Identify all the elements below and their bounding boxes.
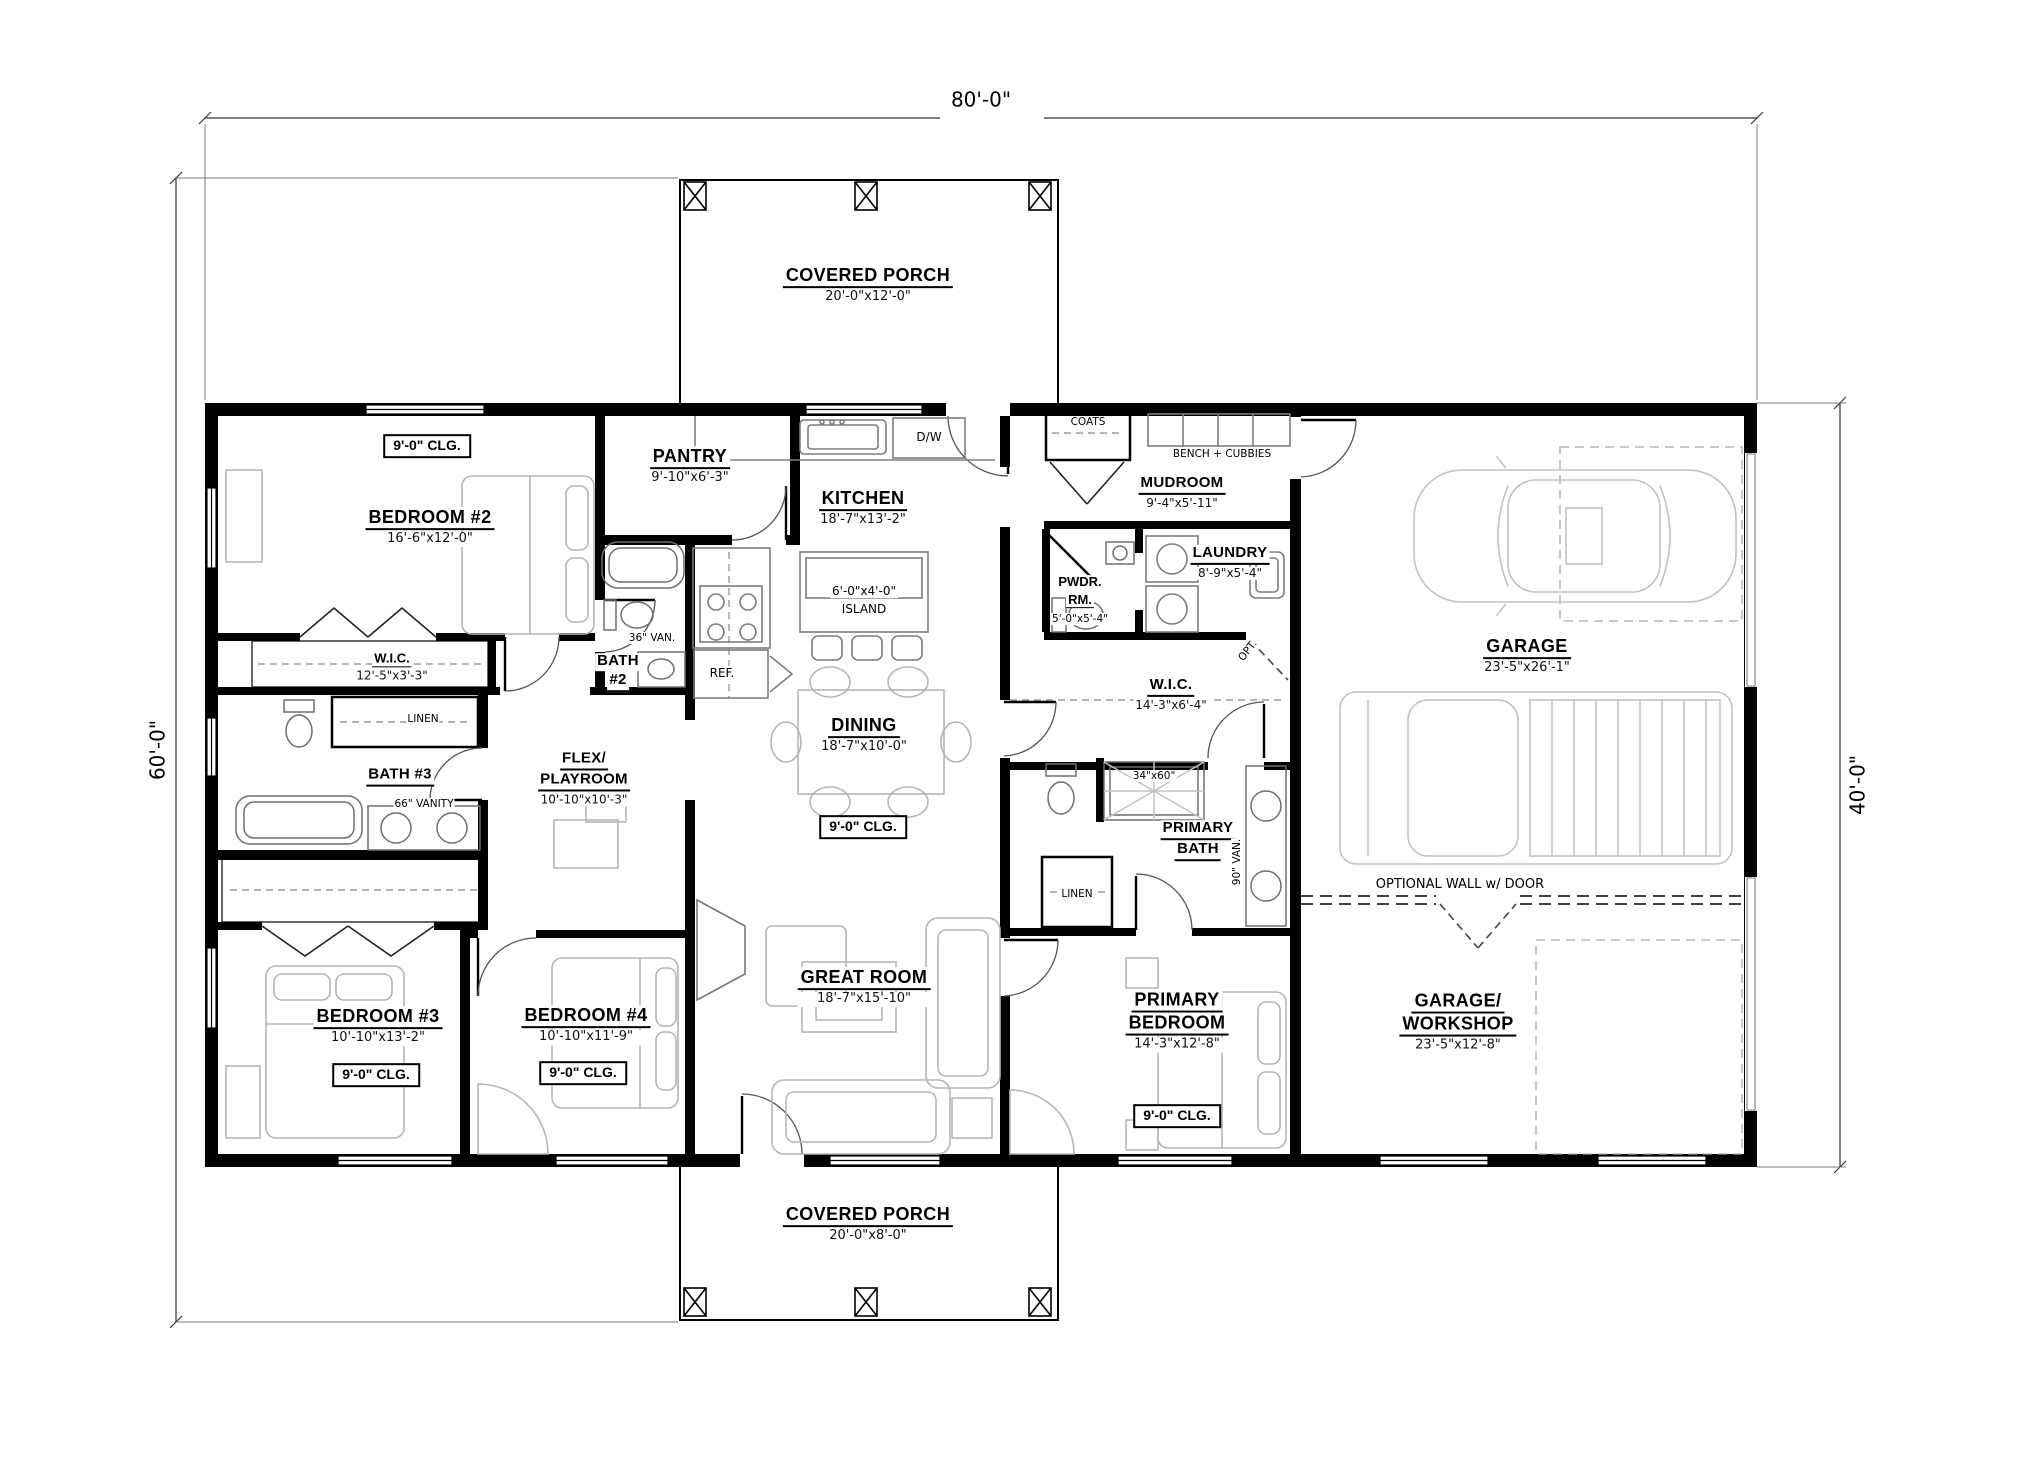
chair-primary bbox=[1010, 1090, 1074, 1154]
porch-top-size: 20'-0"x12'-0" bbox=[783, 290, 953, 305]
primary-bedroom-name-line2: BEDROOM bbox=[1126, 1013, 1229, 1036]
primary-bedroom-size: 14'-3"x12'-8" bbox=[1126, 1038, 1229, 1053]
kitchen-label: KITCHEN 18'-7"x13'-2" bbox=[818, 488, 908, 528]
bedroom3-label: BEDROOM #3 10'-10"x13'-2" bbox=[313, 1006, 442, 1046]
ceiling-badge-bedroom4: 9'-0" CLG. bbox=[539, 1061, 627, 1085]
pantry-label: PANTRY 9'-10"x6'-3" bbox=[649, 446, 731, 486]
dim-height-left-label: 60'-0" bbox=[146, 712, 170, 788]
mudroom-label: MUDROOM 9'-4"x5'-11" bbox=[1139, 474, 1226, 510]
dim-height-right-label: 40'-0" bbox=[1846, 747, 1870, 823]
garage-label: GARAGE 23'-5"x26'-1" bbox=[1482, 636, 1572, 676]
wic-bedroom2-size: 12'-5"x3'-3" bbox=[354, 669, 430, 682]
porch-post bbox=[684, 1288, 706, 1316]
wic-primary-size: 14'-3"x6'-4" bbox=[1133, 699, 1209, 712]
dresser-bedroom2 bbox=[226, 470, 262, 562]
great-room-size: 18'-7"x15'-10" bbox=[798, 992, 931, 1007]
mudroom-size: 9'-4"x5'-11" bbox=[1139, 497, 1226, 510]
great-room-name: GREAT ROOM bbox=[798, 967, 931, 990]
porch-top-name: COVERED PORCH bbox=[783, 265, 953, 288]
island-label: 6'-0"x4'-0" ISLAND bbox=[830, 582, 898, 618]
primary-bath-name-line1: PRIMARY bbox=[1161, 820, 1236, 840]
bath2-label: BATH #2 bbox=[595, 652, 641, 692]
flex-label: FLEX/ PLAYROOM 10'-10"x10'-3" bbox=[538, 749, 630, 806]
vanity66-label: 66" VANITY bbox=[393, 798, 454, 810]
vanity90-label: 90" VAN. bbox=[1231, 838, 1243, 886]
porch-post bbox=[1029, 182, 1051, 210]
laundry-size: 8'-9"x5'-4" bbox=[1191, 567, 1270, 580]
floor-plan: 80'-0" 60'-0" 40'-0" COVERED PORCH 20'-0… bbox=[0, 0, 2040, 1469]
wic-primary-label: W.I.C. 14'-3"x6'-4" bbox=[1133, 676, 1209, 712]
truck-pickup bbox=[1340, 692, 1732, 864]
powder-label: PWDR. RM. 5'-0"x5'-4" bbox=[1051, 573, 1109, 627]
primary-bedroom-label: PRIMARY BEDROOM 14'-3"x12'-8" bbox=[1126, 990, 1229, 1053]
porch-post bbox=[855, 1288, 877, 1316]
dining-name: DINING bbox=[828, 715, 899, 738]
bed-bedroom2 bbox=[462, 476, 594, 634]
corner-desk-bedroom4 bbox=[478, 1084, 548, 1154]
primary-bedroom-name-line1: PRIMARY bbox=[1131, 990, 1222, 1013]
porch-post bbox=[684, 182, 706, 210]
garage-name: GARAGE bbox=[1483, 636, 1570, 659]
dining-size: 18'-7"x10'-0" bbox=[819, 740, 909, 755]
floorplan-linework bbox=[0, 0, 2040, 1469]
wic-primary-name: W.I.C. bbox=[1148, 677, 1195, 697]
kitchen-size: 18'-7"x13'-2" bbox=[818, 513, 908, 528]
laundry-name: LAUNDRY bbox=[1191, 545, 1270, 565]
island-name: ISLAND bbox=[840, 602, 889, 616]
mudroom-bench bbox=[1148, 414, 1290, 446]
powder-name-line2: RM. bbox=[1066, 593, 1094, 609]
linen-bath3-label: LINEN bbox=[406, 713, 439, 725]
pantry-size: 9'-10"x6'-3" bbox=[649, 471, 731, 486]
porch-top-label: COVERED PORCH 20'-0"x12'-0" bbox=[783, 265, 953, 305]
bedroom3-name: BEDROOM #3 bbox=[313, 1006, 442, 1029]
fixtures bbox=[236, 542, 1286, 926]
bench-cubbies-label: BENCH + CUBBIES bbox=[1172, 448, 1272, 460]
bedroom2-size: 16'-6"x12'-0" bbox=[365, 532, 494, 547]
mudroom-name: MUDROOM bbox=[1139, 475, 1226, 495]
linen-primary-label: LINEN bbox=[1060, 888, 1093, 900]
car-sedan bbox=[1414, 456, 1736, 616]
kitchen-name: KITCHEN bbox=[819, 488, 908, 511]
ceiling-badge-primary: 9'-0" CLG. bbox=[1133, 1104, 1221, 1128]
garage-workshop-label: GARAGE/ WORKSHOP 23'-5"x12'-8" bbox=[1399, 991, 1516, 1054]
dishwasher-label: D/W bbox=[914, 430, 943, 444]
powder-name-line1: PWDR. bbox=[1056, 575, 1103, 590]
bedroom3-size: 10'-10"x13'-2" bbox=[313, 1031, 442, 1046]
wic-bedroom2-label: W.I.C. 12'-5"x3'-3" bbox=[354, 649, 430, 682]
bedroom4-label: BEDROOM #4 10'-10"x11'-9" bbox=[521, 1005, 650, 1045]
bedroom2-label: BEDROOM #2 16'-6"x12'-0" bbox=[365, 507, 494, 547]
ceiling-badge-bedroom3: 9'-0" CLG. bbox=[332, 1063, 420, 1087]
garage-size: 23'-5"x26'-1" bbox=[1482, 661, 1572, 676]
coats-label: COATS bbox=[1070, 416, 1107, 428]
great-room-label: GREAT ROOM 18'-7"x15'-10" bbox=[798, 967, 931, 1007]
porch-post bbox=[855, 182, 877, 210]
primary-bath-name-line2: BATH bbox=[1175, 841, 1221, 861]
vanity36-label: 36" VAN. bbox=[628, 632, 676, 644]
flex-name-line2: PLAYROOM bbox=[538, 771, 630, 791]
garage-workshop-size: 23'-5"x12'-8" bbox=[1399, 1039, 1516, 1054]
flex-furniture bbox=[554, 800, 626, 868]
ceiling-badge-dining: 9'-0" CLG. bbox=[819, 815, 907, 839]
bath3-name: BATH #3 bbox=[366, 767, 434, 787]
optional-wall-label: OPTIONAL WALL w/ DOOR bbox=[1374, 877, 1546, 892]
laundry-label: LAUNDRY 8'-9"x5'-4" bbox=[1191, 544, 1270, 580]
ceiling-badge-bedroom2: 9'-0" CLG. bbox=[383, 434, 471, 458]
flex-size: 10'-10"x10'-3" bbox=[538, 793, 630, 806]
pantry-name: PANTRY bbox=[650, 446, 730, 469]
bedroom2-name: BEDROOM #2 bbox=[365, 507, 494, 530]
porch-bottom-label: COVERED PORCH 20'-0"x8'-0" bbox=[783, 1204, 953, 1244]
wic-bedroom2-name: W.I.C. bbox=[372, 651, 411, 667]
porch-post bbox=[1029, 1288, 1051, 1316]
bath2-name-line1: BATH bbox=[595, 653, 641, 671]
porch-bottom-name: COVERED PORCH bbox=[783, 1204, 953, 1227]
dim-width-label: 80'-0" bbox=[943, 88, 1019, 112]
fridge-label: REF. bbox=[708, 666, 737, 680]
bath2-name-line2: #2 bbox=[607, 672, 628, 692]
bed-bedroom3 bbox=[266, 966, 404, 1138]
bedroom4-name: BEDROOM #4 bbox=[521, 1005, 650, 1028]
porch-bottom-size: 20'-0"x8'-0" bbox=[783, 1229, 953, 1244]
dresser-bedroom3 bbox=[226, 1066, 260, 1138]
powder-size: 5'-0"x5'-4" bbox=[1051, 613, 1109, 625]
primary-bath-label: PRIMARY BATH bbox=[1161, 819, 1236, 861]
garage-workshop-name-line1: GARAGE/ bbox=[1412, 991, 1505, 1014]
dining-label: DINING 18'-7"x10'-0" bbox=[819, 715, 909, 755]
island-size: 6'-0"x4'-0" bbox=[830, 584, 898, 598]
kitchen-counter bbox=[693, 416, 995, 698]
bedroom4-size: 10'-10"x11'-9" bbox=[521, 1030, 650, 1045]
garage-workshop-name-line2: WORKSHOP bbox=[1399, 1014, 1516, 1037]
shower-size-label: 34"x60" bbox=[1132, 770, 1177, 782]
flex-name-line1: FLEX/ bbox=[560, 750, 608, 770]
